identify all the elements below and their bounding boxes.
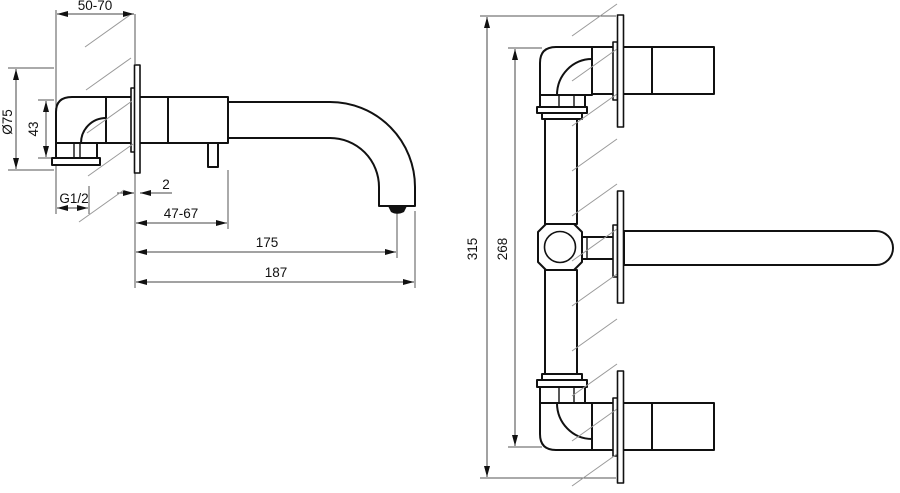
bottom-hex-nut [540,387,585,403]
technical-drawing-canvas: 50-70 Ø75 43 G1/2 2 47-67 175 187 [0,0,900,493]
spout-tee-hex-face [545,232,576,263]
hatch-line [572,4,617,36]
dim-plate-offset-label: 2 [162,177,170,192]
inlet-flange-side [52,158,100,165]
hatch-line [572,454,617,486]
dim-connection-height-label: 268 [495,238,510,261]
front-view: 315 268 [465,4,893,486]
bottom-coupling-flange [537,380,587,387]
escutcheon-plate-bottom [618,371,624,483]
dim-total-projection-label: 187 [265,265,288,280]
escutcheon-plate-top [618,15,624,127]
side-view-faucet [52,88,415,214]
spout-side-profile [228,102,415,206]
dim-wall-mount-depth-label: 50-70 [78,0,113,13]
hatch-line [572,139,617,171]
top-hex-nut [540,95,585,107]
dim-thread-size-label: G1/2 [59,191,88,206]
hatch-line [86,58,131,90]
spout-front-profile [624,231,893,265]
dim-elbow-height-label: 43 [26,121,41,136]
aerator-nozzle [388,206,407,214]
riser-pipe-lower [545,270,577,374]
hatch-line [85,15,130,47]
inlet-hex-nut-side [56,143,97,158]
hatch-line [572,319,617,351]
escutcheon-plate-middle [618,191,624,303]
spout-set-screw-tab [208,143,218,167]
escutcheon-plate-side [135,65,141,173]
front-view-faucet [537,42,893,456]
hatch-line [572,274,617,306]
faucet-dimension-diagram: 50-70 Ø75 43 G1/2 2 47-67 175 187 [0,0,900,493]
dim-escutcheon-diameter-label: Ø75 [0,109,15,135]
dim-cartridge-projection-label: 47-67 [164,206,199,221]
side-view: 50-70 Ø75 43 G1/2 2 47-67 175 187 [0,0,415,288]
riser-pipe-upper [545,119,577,224]
hatch-line [572,184,617,216]
dim-total-height-label: 315 [465,238,480,261]
dim-spout-reach-label: 175 [256,235,279,250]
